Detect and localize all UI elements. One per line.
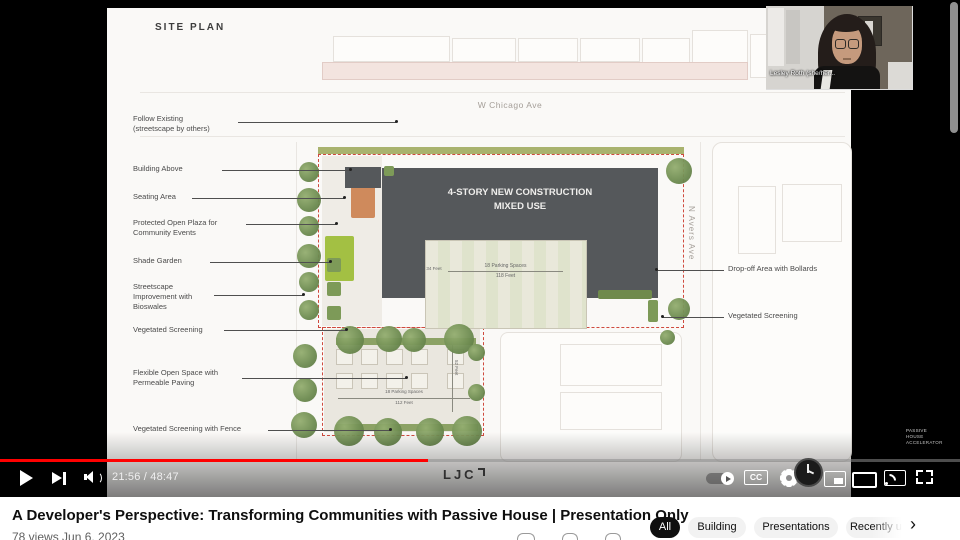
building-label: 4-STORY NEW CONSTRUCTION MIXED USE [392,186,648,214]
neighbor-building [452,38,516,62]
leader-line [210,262,330,263]
callout-streetscape: Streetscape Improvement with Bioswales [133,282,253,312]
street-label-avers: N Avers Ave [687,206,696,280]
tree-icon [376,326,402,352]
gear-hole [786,475,792,481]
tree-icon [666,158,692,184]
cast-dot [885,482,888,485]
tree-icon [299,272,319,292]
road-curb [140,92,845,93]
tree-icon [402,328,426,352]
webcam-paper [888,62,912,89]
progress-bar-fill [0,459,428,462]
dim-lower-depth: 52 Feet [454,360,459,375]
chips-fade [872,515,912,540]
leader-line [656,270,724,271]
leader-dot [329,260,332,263]
road-curb [700,142,701,460]
street-label-chicago: W Chicago Ave [440,100,580,110]
next-icon-bar [63,472,66,485]
chip-all[interactable]: All [650,517,680,538]
clipped-action-buttons[interactable] [517,533,647,540]
tree-icon [297,244,321,268]
parking-stall [386,373,403,389]
page-scrollbar[interactable] [950,2,958,133]
leader-dot [395,120,398,123]
tree-icon [297,188,321,212]
leader-dot [343,196,346,199]
leader-line [268,430,390,431]
miniplayer-button[interactable] [824,471,846,487]
leader-line [224,330,346,331]
neighbor-building [580,38,640,62]
callout-vegetated-screening-east: Vegetated Screening [728,311,848,321]
dim-line [448,271,563,272]
youtube-watch-page: SITE PLAN W Chicago Ave N Avers Ave 4-ST… [0,0,960,540]
video-title: A Developer's Perspective: Transforming … [12,507,732,524]
chips-more-button[interactable]: › [910,514,916,535]
neighbor-building-pink [322,62,748,80]
leader-dot [655,268,658,271]
chip-building[interactable]: Building [688,517,746,538]
video-meta: 78 views Jun 6, 2023 [12,530,125,540]
tree-icon [299,162,319,182]
leader-line [214,295,303,296]
shrub [384,166,394,176]
parking-stall [361,373,378,389]
tree-icon [299,300,319,320]
parking-stall [336,373,353,389]
download-icon [605,533,621,540]
leader-dot [302,293,305,296]
road-curb [296,142,297,460]
cc-button[interactable]: CC [744,470,768,485]
next-icon [52,472,62,484]
parking-stall [411,373,428,389]
leader-dot [389,428,392,431]
time-display: 21:56 / 48:47 [112,471,179,483]
neighbor-building [782,184,842,242]
dim-line [338,398,470,399]
vegetated-screen-strip [648,300,658,322]
dim-lower-length: 112 Feet [338,400,470,405]
neighbor-building [738,186,776,254]
slide-title: SITE PLAN [155,22,225,33]
leader-dot [405,376,408,379]
tree-icon [468,384,485,401]
patio-seating-area [351,184,375,218]
autoplay-toggle[interactable] [706,473,733,484]
webcam-window-pane [768,8,784,66]
person-mouth [843,58,851,60]
vegetated-screen-strip [598,290,652,299]
bioswale-shrub [327,282,341,296]
fullscreen-button[interactable] [916,470,933,484]
fullscreen-corner [916,478,923,484]
neighbor-building [518,38,578,62]
callout-dropoff: Drop-off Area with Bollards [728,264,848,274]
leader-dot [335,222,338,225]
callout-follow-existing: Follow Existing (streetscape by others) [133,114,253,134]
leader-dot [349,168,352,171]
person-hair-fringe [828,18,864,32]
dim-lower-spaces: 18 Parking Spaces [338,389,470,394]
parking-stall [361,349,378,365]
neighbor-building [560,392,662,430]
chip-presentations[interactable]: Presentations [754,517,838,538]
webcam-overlay: Lesley Roth (she/her... [766,6,913,90]
fullscreen-corner [926,470,933,476]
volume-icon-wave [93,472,102,484]
dim-upper-spaces: 18 Parking Spaces [448,263,563,269]
person-glasses [848,39,859,49]
bioswale-shrub [327,306,341,320]
neighbor-building [560,344,662,386]
callout-open-plaza: Protected Open Plaza for Community Event… [133,218,253,238]
tree-icon [299,216,319,236]
miniplayer-inner [834,478,843,484]
tree-icon [660,330,675,345]
fullscreen-corner [916,470,923,476]
webcam-window-pane [786,10,800,64]
play-button[interactable] [20,470,33,486]
parking-stall [447,373,464,389]
share-icon [562,533,578,540]
clock-overlay-icon [794,458,823,487]
dim-upper-length: 118 Feet [448,273,563,279]
tree-icon [468,344,485,361]
tree-icon [293,344,317,368]
person-glasses [835,39,846,49]
autoplay-play-icon [726,476,731,482]
volume-icon-cone [86,471,93,483]
leader-line [242,378,406,379]
cast-button[interactable] [884,470,906,486]
courtyard-parking [425,240,587,329]
theater-mode-button[interactable] [852,472,877,488]
next-button[interactable] [52,472,68,485]
volume-button[interactable] [84,470,104,484]
leader-dot [345,328,348,331]
leader-line [662,317,724,318]
dim-upper-depth: 34 Feet [423,266,445,271]
tree-icon [293,378,317,402]
road-curb [140,136,845,137]
clock-hand [807,470,814,475]
fullscreen-corner [926,478,933,484]
leader-line [222,170,350,171]
webcam-name-tag: Lesley Roth (she/her... [770,70,835,77]
like-icon [517,533,535,540]
leader-line [238,122,396,123]
leader-dot [661,315,664,318]
neighbor-building [333,36,450,62]
leader-line [246,224,336,225]
parkway-planting [318,147,684,154]
leader-line [192,198,344,199]
